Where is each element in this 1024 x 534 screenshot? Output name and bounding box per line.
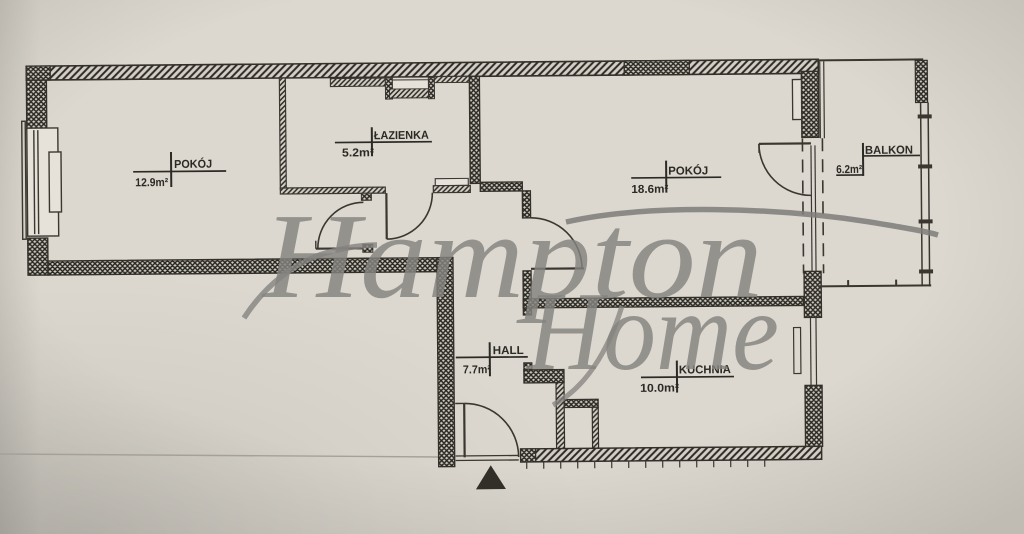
svg-text:12.9m²: 12.9m² <box>135 177 168 189</box>
svg-text:HALL: HALL <box>493 345 524 357</box>
svg-text:6.2m²: 6.2m² <box>836 164 862 176</box>
svg-text:5.2m²: 5.2m² <box>342 147 374 159</box>
svg-text:POKÓJ: POKÓJ <box>668 164 708 177</box>
svg-text:7.7m²: 7.7m² <box>463 364 491 376</box>
svg-text:Home: Home <box>525 270 779 394</box>
svg-text:POKÓJ: POKÓJ <box>174 158 212 171</box>
svg-text:BALKON: BALKON <box>865 144 913 156</box>
svg-text:ŁAZIENKA: ŁAZIENKA <box>374 130 429 142</box>
